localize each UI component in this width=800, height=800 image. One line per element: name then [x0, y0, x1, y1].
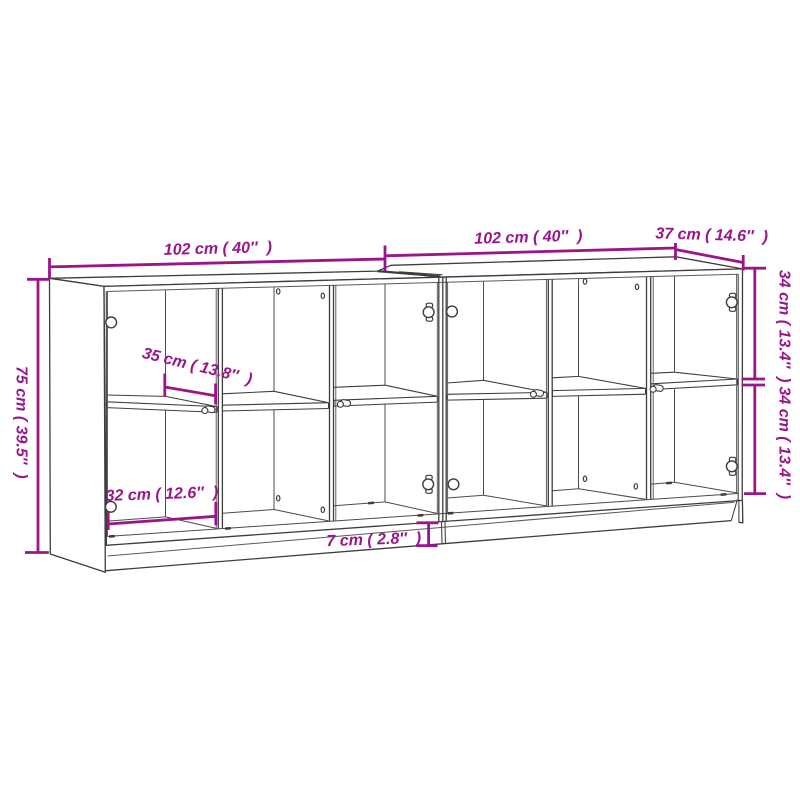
- svg-text:102 cm ( 40″ ): 102 cm ( 40″ ): [474, 228, 583, 248]
- svg-text:34 cm ( 13.4″ ): 34 cm ( 13.4″ ): [775, 386, 792, 499]
- svg-text:34 cm ( 13.4″ ): 34 cm ( 13.4″ ): [775, 270, 792, 383]
- svg-text:75 cm ( 39.5″ ): 75 cm ( 39.5″ ): [13, 366, 30, 479]
- svg-text:37 cm ( 14.6″ ): 37 cm ( 14.6″ ): [655, 225, 768, 245]
- svg-text:7 cm ( 2.8″ ): 7 cm ( 2.8″ ): [326, 530, 421, 550]
- svg-text:102 cm ( 40″ ): 102 cm ( 40″ ): [164, 239, 273, 259]
